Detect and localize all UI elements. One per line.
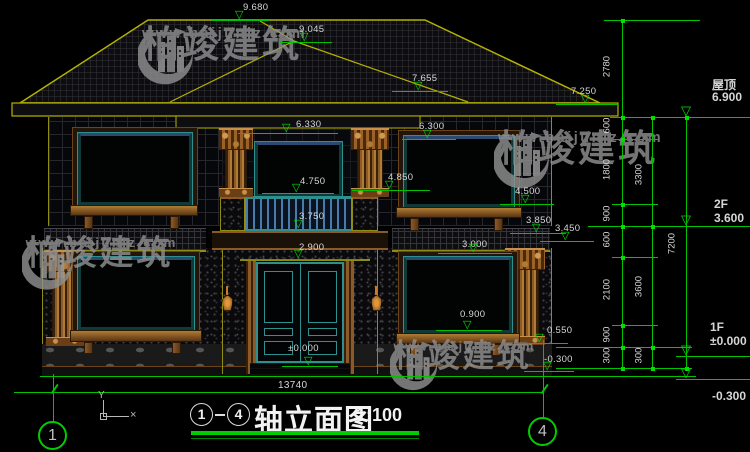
title-dash: [215, 414, 225, 416]
title-underline-2: [191, 438, 419, 439]
drawing-scale: 1:100: [356, 405, 402, 426]
title-axis-circle-1: 1: [190, 403, 213, 426]
title-underline: [191, 431, 419, 435]
cad-elevation-drawing: 9.680▽9.045▽7.655▽7.250▽6.330▽6.300▽4.85…: [0, 0, 750, 452]
drawing-title-block: 1 4 轴立面图 1:100 Y ×: [0, 0, 750, 452]
ucs-icon: Y ×: [94, 390, 139, 422]
title-axis-circle-4: 4: [227, 403, 250, 426]
